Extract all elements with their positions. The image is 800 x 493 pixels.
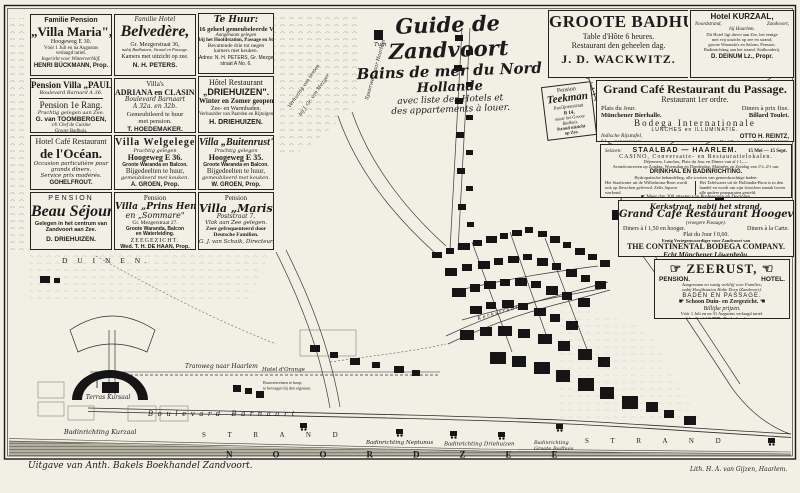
ad-line: Hoogeweg E 30. xyxy=(31,39,111,45)
ad-line: Zandvoort, xyxy=(767,22,789,27)
ad-villa-maris: Pension Villa „Maris" Poststraat 7. Vlak… xyxy=(198,192,274,250)
badinrichting-driehuizen-label: Badinrichting Driehuizen xyxy=(443,442,515,448)
bouwterrein-label-2: te bevragen bij den eigenaar. xyxy=(263,386,311,391)
ad-line: Groote Badhuis. xyxy=(31,129,111,133)
ad-title: Grand Café Restaurant du Passage. xyxy=(597,83,793,96)
ad-line: gemeubileerd met keuken. xyxy=(115,176,195,181)
duinen-label: D U I N E N. xyxy=(62,256,150,265)
ad-line: Gemeubileerd te huur xyxy=(115,111,195,118)
ad-proprietor: N. H. PETERS. xyxy=(115,62,195,69)
ad-hotel-ocean: Hotel Café Restaurant de l'Océan. Occasi… xyxy=(30,135,112,190)
ad-title: Beau Séjour xyxy=(31,203,111,220)
ad-title: „DRIEHUIZEN". xyxy=(199,88,273,98)
ad-heading: Te Huur: xyxy=(199,16,273,26)
ad-cafe-passage: Grand Café Restaurant du Passage. Restau… xyxy=(596,80,794,142)
ad-proprietor: H. C. VOET, Driehuizen. xyxy=(655,317,789,319)
ad-line: ☛ Meer dan 300 attesten van Professoren … xyxy=(601,195,791,198)
ad-villa-welgelegen: Villa Welgelegen Prachtig gelegen Hoogew… xyxy=(114,135,196,190)
ad-adriana-clasina: Villa's ADRIANA en CLASINA Boulevard Bar… xyxy=(114,78,196,133)
ad-proprietor: G. J. van Schaik, Directeur. xyxy=(199,240,273,246)
ad-hotel-driehuizen: Hôtel Restaurant „DRIEHUIZEN". Winter en… xyxy=(198,76,274,133)
ad-proprietor: HENRI BÜCKMANN, Prop. xyxy=(31,63,111,69)
ad-groote-badhuis: GROOTE BADHUIS. Table d'Hôte 6 heures. R… xyxy=(548,10,688,78)
ad-line: straat A No. 6. xyxy=(199,62,273,67)
ad-line: A 32a. en 32b. xyxy=(115,104,195,110)
ad-zeerust: ☞ ZEERUST, ☜ PENSION.HOTEL. Aangenaam en… xyxy=(654,259,790,319)
noordzee-label: NOORDZEE xyxy=(226,450,598,460)
map-sheet: D U I N E N. Tuin Spoorweg naar Haarlem … xyxy=(0,0,800,493)
ad-line: Noordstrand, xyxy=(695,22,722,27)
tram-label: Tramweg naar Haarlem xyxy=(185,363,258,370)
ad-belvedere: Familie Hotel Belvedère, Gr. Mezgerstraa… xyxy=(114,14,196,76)
boulevard-label: Boulevard Barnaart xyxy=(147,410,299,418)
ad-staalbad-haarlem: Seizoen: STAALBAD — HAARLEM. 15 Mei — 15… xyxy=(600,144,792,198)
strand-label-west: S T R A N D xyxy=(202,431,348,439)
ad-line: Verhuurder van Paarden en Rijtuigen. xyxy=(199,112,273,117)
ad-heading: PENSION xyxy=(31,195,111,203)
ad-line: met pension. xyxy=(115,118,195,125)
ad-title: Belvedère, xyxy=(115,23,195,40)
ad-line: Kamers met uitzicht op zee. xyxy=(115,54,195,60)
map-title: Guide de Zandvoort Bains de mer du Nord … xyxy=(354,9,543,118)
hotel-orange-label: Hotel d'Orange xyxy=(261,367,306,373)
ad-beau-sejour: PENSION Beau Séjour Gelegen in het centr… xyxy=(30,192,112,250)
ad-line: HOTEL. xyxy=(761,276,785,283)
ad-line: Echt Münchener Löwenbräu. xyxy=(619,252,793,257)
publisher-credit: Uitgave van Anth. Bakels Boekhandel Zand… xyxy=(28,461,253,471)
ad-title: GROOTE BADHUIS. xyxy=(549,13,688,31)
ad-cafe-hoogeveld: Kerkstraat, nabij het strand. Grand Café… xyxy=(618,200,794,257)
ad-title: 16 geheel gemeubeleerde Villa's, xyxy=(199,26,273,33)
ad-proprietor: A. GROEN, Prop. xyxy=(115,182,195,188)
ad-line: Winter en Zomer geopend. xyxy=(199,98,273,106)
ad-line: Zandvoort aan Zee. xyxy=(31,228,111,234)
ad-title: Grand Café Restaurant Hoogeveld xyxy=(619,210,793,221)
ad-prins-hendrik: Pension Villa „Prins Hendrik" en „Sommar… xyxy=(114,192,196,250)
ad-proprietor: Wed. T. H. DE HAAN, Prop. xyxy=(115,245,195,250)
ad-villa-maria: Familie Pension „Villa Maria", Hoogeweg … xyxy=(30,14,112,76)
ad-line: Service prix modérés. xyxy=(31,174,111,180)
ad-fine-print: Hotel Restaurant „ZUM KURHAUS", xyxy=(715,140,789,142)
ad-proprietor: D. DRIEHUIZEN. xyxy=(31,236,111,243)
ad-line: Diners à f 1,50 en hooger. xyxy=(623,226,685,232)
ad-villa-buitenrust: Villa „Buitenrust" Prachtig gelegen Hoog… xyxy=(198,135,274,190)
ad-line: gemeubileerd met keuken. xyxy=(199,176,273,181)
ad-title: ☞ ZEERUST, ☜ xyxy=(655,262,789,276)
badinrichting-kurzaal-label: Badinrichting Kurzaal xyxy=(63,428,136,436)
ad-proprietor: H. DRIEHUIZEN. xyxy=(199,119,273,127)
ad-title: de l'Océan. xyxy=(31,147,111,161)
ad-line: Plats du Jour. xyxy=(601,105,636,112)
ad-line: Restaurant den geheelen dag. xyxy=(549,42,688,51)
ad-te-huur-villas: Te Huur: 16 geheel gemeubeleerde Villa's… xyxy=(198,13,274,74)
ad-proprietor: J. D. WACKWITZ. xyxy=(549,53,688,66)
kerkstraat-label: K e r k s t r a a t xyxy=(476,304,519,322)
ad-fine-print: Het Staalwater uit de Wilhelmina-Bron wo… xyxy=(605,181,696,195)
ad-fine-print: Badinrichting aan het strand. Stalhouder… xyxy=(691,48,793,53)
ad-line: Deutsche Familien. xyxy=(199,233,273,239)
title-line-1: Guide de Zandvoort xyxy=(354,9,542,65)
ad-line: Diners à la Carte. xyxy=(747,226,789,232)
ad-title: STAALBAD — HAARLEM. xyxy=(633,147,738,154)
ad-line: nabij Badhuizen, Strand en Passage. xyxy=(115,48,195,53)
ad-line: Ingericht voor Winterverblijf. xyxy=(31,57,111,62)
ad-proprietor: T. HOEDEMAKER. xyxy=(115,126,195,133)
ad-proprietor: W. GROEN, Prop. xyxy=(199,182,273,188)
ad-fine-print: Het Tafelwater uit de Hollandia-Bron is … xyxy=(700,181,788,195)
ad-proprietor: GOHELFROUT. xyxy=(31,180,111,186)
ad-pension-paula: Pension Villa „PAULA", Boulevard Barnard… xyxy=(30,78,112,133)
ad-line: f 1.— per persoon. xyxy=(601,140,642,142)
ad-pension-teekman: Pension Teekman Paviljoenstraat B 14, na… xyxy=(541,81,597,141)
ad-line: Boulevard Barnard A 36. xyxy=(31,91,111,96)
strand-label-east: S T R A N D xyxy=(585,437,731,445)
ad-title: Hotel KURZAAL, xyxy=(691,13,793,22)
lithographer-credit: Lith. H. A. van Gijzen, Haarlem. xyxy=(690,466,787,473)
ad-title: „Villa Maria", xyxy=(31,25,111,39)
ad-line: Diners à prix fixe. xyxy=(742,105,789,112)
terras-kursaal-label: Terras Kursaal xyxy=(86,394,131,401)
kurhaus-terrace xyxy=(70,316,155,400)
ad-line: Restaurant 1er ordre. xyxy=(597,96,793,105)
ad-proprietor: G. van TOOMBERGEN, xyxy=(31,116,111,123)
garden-plots xyxy=(38,330,356,421)
ad-hotel-kurzaal: Hotel KURZAAL, Noordstrand,Zandvoort, bi… xyxy=(690,10,794,78)
ad-proprietor: D. DEINUM Lz., Propr. xyxy=(691,54,793,60)
badinrichting-neptunus-label: Badinrichting Neptunus xyxy=(365,440,433,446)
